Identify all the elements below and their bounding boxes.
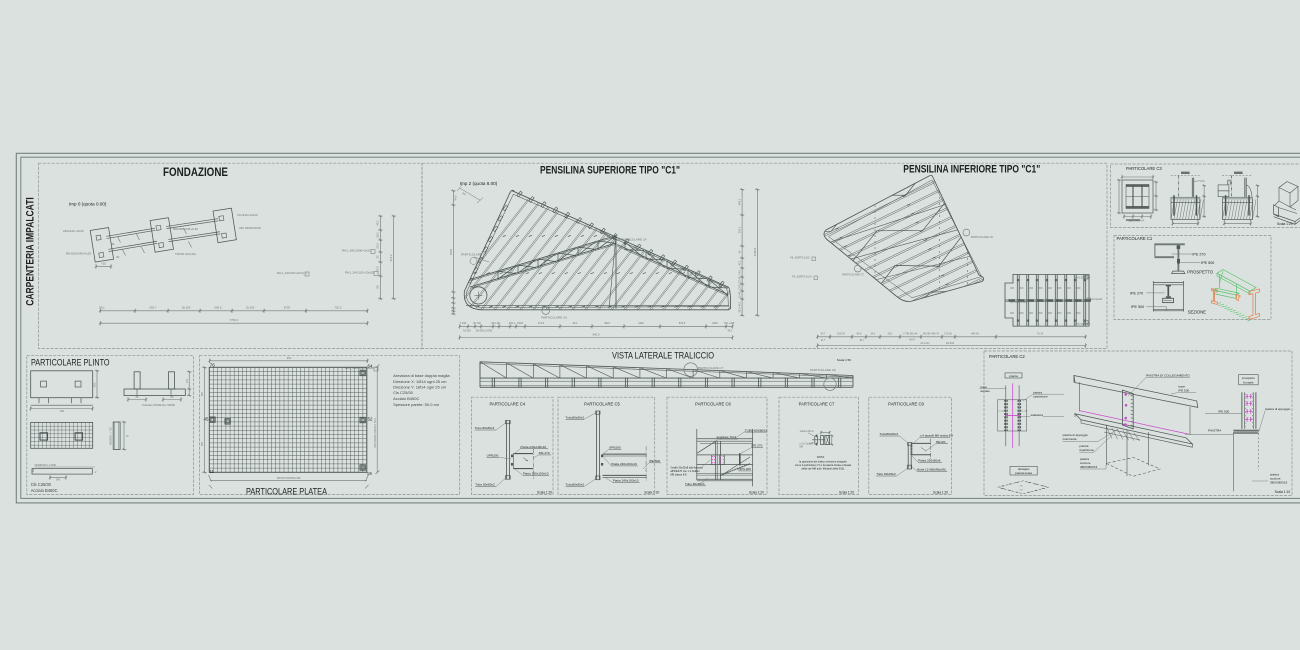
svg-text:91.925: 91.925 (463, 330, 471, 333)
svg-text:250: 250 (201, 391, 204, 396)
svg-text:4729.8: 4729.8 (753, 247, 757, 256)
svg-text:Graffa 30x25x8 alla fiancata: Graffa 30x25x8 alla fiancata (671, 465, 704, 469)
svg-text:Imp 2 (quota 8.00): Imp 2 (quota 8.00) (460, 181, 498, 186)
svg-text:234.1: 234.1 (739, 226, 742, 233)
svg-text:870.8: 870.8 (679, 322, 686, 325)
svg-text:PENSILINA INFERIORE TIPO "C1": PENSILINA INFERIORE TIPO "C1" (903, 164, 1040, 176)
svg-text:240: 240 (56, 479, 61, 482)
svg-text:piastra 8mm: piastra 8mm (800, 429, 814, 433)
svg-text:RH1_230.DKI+0LD(...): RH1_230.DKI+0LD(...) (277, 271, 307, 275)
svg-text:Spessore parete: 50.0 cm: Spessore parete: 50.0 cm (393, 402, 439, 407)
svg-text:della vite M8 tutti i filettan: della vite M8 tutti i filettanti della 3… (801, 467, 845, 471)
svg-text:PARTICOLARE C4: PARTICOLARE C4 (621, 238, 647, 242)
svg-text:28.150: 28.150 (182, 306, 191, 310)
svg-text:all'IPE270 con n.2 bulloni: all'IPE270 con n.2 bulloni (671, 469, 700, 473)
svg-text:PARTICOLARE C6: PARTICOLARE C6 (695, 402, 731, 407)
svg-text:C400: C400 (517, 322, 524, 325)
svg-text:PARTICOLARE C2: PARTICOLARE C2 (989, 354, 1025, 359)
svg-text:25.150: 25.150 (246, 306, 255, 310)
svg-text:PARTICOLARE C8: PARTICOLARE C8 (810, 368, 836, 372)
svg-text:24.7: 24.7 (821, 340, 826, 342)
svg-text:Acciaio B450C: Acciaio B450C (393, 396, 419, 401)
svg-text:XCx230+10x20: XCx230+10x20 (237, 213, 258, 217)
svg-text:C04: C04 (739, 285, 742, 290)
svg-text:+25: +25 (101, 262, 106, 266)
svg-text:UPN200: UPN200 (609, 446, 621, 450)
svg-text:Scala 1:10: Scala 1:10 (1275, 490, 1291, 494)
svg-text:FERRO/8.1 L=500: FERRO/8.1 L=500 (35, 463, 57, 467)
svg-text:RH1200/245+0x20: RH1200/245+0x20 (66, 252, 91, 256)
svg-text:VISTA LATERALE TRALICCIO: VISTA LATERALE TRALICCIO (612, 351, 714, 361)
svg-text:IPE 500: IPE 500 (1201, 261, 1214, 265)
svg-text:RH1.SDRT0.0: RH1.SDRT0.0 (1075, 277, 1091, 280)
svg-text:PARTICOLARE C6: PARTICOLARE C6 (541, 315, 567, 319)
svg-text:80.1: 80.1 (99, 306, 105, 310)
svg-text:380X380X15: 380X380X15 (1270, 481, 1288, 485)
svg-text:Piatta 240x100x10: Piatta 240x100x10 (613, 479, 639, 483)
svg-text:Cls C25/30: Cls C25/30 (393, 390, 414, 395)
svg-text:Piatta 130x100x10: Piatta 130x100x10 (523, 472, 549, 476)
svg-text:230x240 +0x20: 230x240 +0x20 (63, 229, 84, 233)
svg-text:PARTICOLARE C7: PARTICOLARE C7 (799, 402, 835, 407)
svg-text:PARTICOLARE C7: PARTICOLARE C7 (698, 366, 724, 370)
svg-text:Acciaio B450C: Acciaio B450C (31, 488, 58, 493)
svg-text:Tubo80x80x3: Tubo80x80x3 (879, 432, 898, 436)
svg-text:PARTICOLARE C8: PARTICOLARE C8 (888, 402, 924, 407)
svg-text:C37.43: C37.43 (739, 276, 742, 285)
svg-text:Scala 1:20: Scala 1:20 (1277, 222, 1293, 226)
svg-text:29.1: 29.1 (888, 333, 893, 336)
svg-text:PIASTRA: PIASTRA (1208, 429, 1222, 433)
svg-text:494.1: 494.1 (739, 198, 742, 205)
svg-text:Piatta 240x100x10: Piatta 240x100x10 (611, 462, 637, 466)
svg-text:PARTICOLARE C3: PARTICOLARE C3 (1126, 166, 1162, 171)
svg-text:NOTA: NOTA (817, 455, 825, 459)
svg-text:40.1: 40.1 (739, 260, 742, 265)
svg-text:Imp 0 (quota 0.00): Imp 0 (quota 0.00) (69, 202, 107, 207)
svg-text:colonnetta: colonnetta (1063, 437, 1077, 441)
svg-text:400.1: 400.1 (509, 322, 516, 325)
svg-text:IPE 500: IPE 500 (1218, 409, 1229, 413)
svg-text:2964: 2964 (712, 322, 718, 325)
svg-text:SPESSORE PARETE 50.0: SPESSORE PARETE 50.0 (374, 417, 377, 447)
svg-text:79.14: 79.14 (1037, 333, 1044, 336)
svg-text:UPN: UPN (1200, 180, 1205, 183)
svg-text:come il particolare C7 e la pi: come il particolare C7 e la piastra fora… (795, 463, 852, 467)
svg-text:74.5: 74.5 (739, 269, 742, 274)
svg-text:2340: 2340 (638, 322, 644, 325)
svg-text:48.592 494.74: 48.592 494.74 (923, 333, 940, 336)
svg-text:7760.2: 7760.2 (230, 318, 239, 322)
svg-text:PIL.SDRT0.0x20: PIL.SDRT0.0x20 (790, 256, 810, 260)
svg-text:25.5: 25.5 (376, 266, 380, 272)
svg-text:38.1+40.1: 38.1+40.1 (739, 301, 742, 313)
svg-text:piastra testa: piastra testa (1015, 471, 1032, 475)
svg-text:380X380X15: 380X380X15 (1080, 465, 1098, 469)
svg-text:la giunzione dei tralicci verr: la giunzione dei tralicci verranno esegu… (799, 459, 847, 463)
svg-text:Tubo80x80x3: Tubo80x80x3 (565, 416, 584, 420)
svg-text:Trav.tipo4x4: Trav.tipo4x4 (1090, 298, 1104, 301)
svg-text:Scala 1:20: Scala 1:20 (749, 491, 764, 495)
svg-text:Tubo 80x80x2: Tubo 80x80x2 (876, 472, 896, 476)
svg-text:PIASTRA DI COLLEGAMENTO: PIASTRA DI COLLEGAMENTO (1146, 373, 1190, 377)
svg-text:592.7: 592.7 (150, 306, 157, 310)
svg-text:24.7: 24.7 (821, 333, 826, 336)
svg-text:900: 900 (287, 356, 292, 360)
svg-text:28.1: 28.1 (376, 232, 380, 238)
svg-text:25.45: 25.45 (739, 291, 742, 298)
svg-text:94.7: 94.7 (860, 340, 865, 342)
svg-text:PARTICOLARE C5: PARTICOLARE C5 (461, 253, 487, 257)
svg-text:45.1: 45.1 (728, 330, 733, 333)
svg-text:Piatta 240x100x10: Piatta 240x100x10 (521, 445, 547, 449)
svg-text:IPE 270: IPE 270 (539, 451, 550, 455)
svg-text:PARTICOLARE C8: PARTICOLARE C8 (971, 235, 994, 239)
svg-text:Piatta 230x80x8: Piatta 230x80x8 (918, 459, 940, 463)
svg-text:250: 250 (201, 441, 204, 446)
svg-text:PARTICOLARE C1: PARTICOLARE C1 (1117, 236, 1153, 241)
svg-text:Scala 1:20: Scala 1:20 (839, 491, 854, 495)
svg-text:30: 30 (116, 255, 120, 259)
svg-text:740 +408: 740 +408 (724, 322, 735, 325)
svg-text:700: 700 (59, 409, 64, 413)
svg-text:IPE 270: IPE 270 (1130, 291, 1143, 295)
svg-text:Tubo 80x80x3: Tubo 80x80x3 (475, 426, 495, 430)
svg-text:PARTICOLARE C4: PARTICOLARE C4 (489, 402, 525, 407)
svg-text:SHOW PIASTRA 900: SHOW PIASTRA 900 (277, 477, 302, 480)
svg-text:474.9: 474.9 (538, 322, 545, 325)
svg-text:PIL.SDRT0.0x20: PIL.SDRT0.0x20 (792, 275, 812, 279)
svg-text:CARPENTERIA IMPALCATI: CARPENTERIA IMPALCATI (25, 197, 37, 306)
svg-text:1976: 1976 (449, 248, 453, 255)
svg-text:(34.08) (0.876): (34.08) (0.876) (476, 330, 493, 333)
svg-text:29.1: 29.1 (573, 322, 578, 325)
svg-text:34.1: 34.1 (871, 333, 876, 336)
svg-text:PARTICOLARE C5: PARTICOLARE C5 (584, 402, 620, 407)
svg-text:HE120: HE120 (936, 440, 946, 444)
svg-text:(7.78) 981.44: (7.78) 981.44 (903, 333, 918, 336)
svg-text:acciaio: acciaio (980, 389, 990, 393)
svg-text:600/300x245+0.30: 600/300x245+0.30 (173, 227, 198, 231)
svg-text:24.1.014: 24.1.014 (921, 343, 931, 345)
svg-text:720.2: 720.2 (335, 306, 342, 310)
svg-text:518.75: 518.75 (837, 333, 845, 336)
svg-text:944.191: 944.191 (491, 322, 501, 325)
svg-text:angolare 70x4: angolare 70x4 (717, 435, 737, 439)
svg-text:40.720: 40.720 (473, 322, 481, 325)
svg-text:PENSILINA SUPERIORE TIPO "C1": PENSILINA SUPERIORE TIPO "C1" (540, 164, 680, 176)
svg-text:4Ø16/20L = 700: 4Ø16/20L = 700 (110, 426, 113, 445)
svg-text:TRV30 3x2x10+: TRV30 3x2x10+ (175, 252, 197, 256)
svg-text:52: 52 (368, 417, 373, 422)
svg-text:ripartizione: ripartizione (1079, 448, 1094, 452)
svg-text:7.440: 7.440 (460, 322, 467, 325)
svg-text:29.534: 29.534 (946, 341, 955, 345)
svg-text:Scala 1:50: Scala 1:50 (837, 358, 852, 362)
svg-text:Direzione Y: 1Ø14 ogni 25 cm: Direzione Y: 1Ø14 ogni 25 cm (393, 385, 447, 390)
svg-text:piastra di appoggio: piastra di appoggio (1265, 407, 1291, 411)
svg-text:SEZIONE: SEZIONE (1188, 310, 1207, 315)
svg-text:IPE 500: IPE 500 (649, 459, 660, 463)
svg-text:ripartizione: ripartizione (1033, 394, 1048, 398)
svg-text:Armatura di base doppia maglia: Armatura di base doppia maglia (393, 373, 450, 378)
svg-text:40.1: 40.1 (376, 220, 380, 226)
svg-text:CL-400: CL-400 (998, 410, 1006, 412)
svg-text:RH1_280.2800+0x20: RH1_280.2800+0x20 (342, 249, 371, 253)
svg-text:49.67: 49.67 (909, 340, 915, 342)
svg-text:Scala 1:20: Scala 1:20 (537, 490, 552, 494)
svg-text:19: 19 (367, 471, 372, 476)
svg-text:506.5: 506.5 (215, 306, 222, 310)
svg-text:35: 35 (376, 255, 380, 259)
svg-text:PARTICOLARE PLINTO: PARTICOLARE PLINTO (31, 357, 110, 367)
svg-text:RH1.SDRT0.0: RH1.SDRT0.0 (1075, 323, 1091, 326)
svg-text:8703: 8703 (284, 306, 291, 310)
svg-text:PARTICOLARE C7: PARTICOLARE C7 (842, 273, 865, 277)
svg-text:TUBO 80X80X3: TUBO 80X80X3 (745, 428, 767, 432)
svg-text:11: 11 (209, 469, 214, 474)
svg-text:PIL.SDRT0.020: PIL.SDRT0.020 (1010, 301, 1027, 304)
svg-text:4024: 4024 (604, 322, 610, 325)
svg-text:PARTICOLARE PLATEA: PARTICOLARE PLATEA (246, 487, 328, 497)
svg-text:Bulla 12 AB(M8)x95L: Bulla 12 AB(M8)x95L (917, 468, 946, 472)
svg-text:94.6: 94.6 (857, 333, 862, 336)
svg-text:330 2000/10x38: 330 2000/10x38 (239, 226, 261, 230)
svg-text:CL-400: CL-400 (1021, 410, 1029, 412)
svg-text:Scala 1:20: Scala 1:20 (933, 491, 948, 495)
svg-text:pianta: pianta (1009, 374, 1018, 378)
svg-text:88: 88 (376, 285, 380, 289)
svg-text:300: 300 (93, 382, 97, 387)
svg-text:940.0: 940.0 (593, 332, 600, 336)
svg-text:175.35: 175.35 (944, 333, 952, 336)
svg-text:Cls C25/30: Cls C25/30 (31, 482, 52, 487)
svg-text:FONDAZIONE: FONDAZIONE (163, 165, 228, 179)
svg-text:64: 64 (368, 363, 373, 368)
svg-text:473.2: 473.2 (389, 254, 393, 261)
svg-text:IPE 500: IPE 500 (1131, 305, 1144, 309)
svg-text:Scala 1:20: Scala 1:20 (644, 490, 659, 494)
svg-text:frontale: frontale (1243, 380, 1254, 384)
svg-text:25.6: 25.6 (376, 243, 380, 249)
svg-text:Tubo 80x80x2: Tubo 80x80x2 (475, 483, 495, 487)
svg-text:n.4 tasselli M8 resina 8.8: n.4 tasselli M8 resina 8.8 (920, 433, 954, 437)
svg-text:30: 30 (111, 242, 115, 246)
svg-text:UPN200: UPN200 (487, 454, 499, 458)
svg-text:Tubolare 80x80x3a 700/80: Tubolare 80x80x3a 700/80 (142, 403, 176, 407)
svg-text:170: 170 (186, 378, 189, 383)
svg-text:M8 classe 8.8: M8 classe 8.8 (671, 472, 688, 476)
svg-text:484.04: 484.04 (971, 333, 979, 336)
svg-text:Direzione X: 1Ø14 ogni 25 cm: Direzione X: 1Ø14 ogni 25 cm (393, 379, 447, 384)
svg-text:94.5: 94.5 (455, 195, 458, 200)
svg-text:Tubo80x80x3: Tubo80x80x3 (565, 483, 584, 487)
svg-text:76: 76 (210, 363, 215, 368)
svg-text:IPE 270: IPE 270 (1192, 252, 1205, 256)
svg-text:RH1_240.2(D+10x20): RH1_240.2(D+10x20) (345, 271, 374, 275)
svg-text:IPE 270: IPE 270 (751, 444, 762, 448)
svg-text:PROSPETTO: PROSPETTO (1187, 270, 1213, 275)
svg-text:saldatura: saldatura (1031, 413, 1044, 417)
svg-text:IPE 500: IPE 500 (1178, 388, 1189, 392)
svg-text:UPN 200: UPN 200 (738, 467, 751, 471)
